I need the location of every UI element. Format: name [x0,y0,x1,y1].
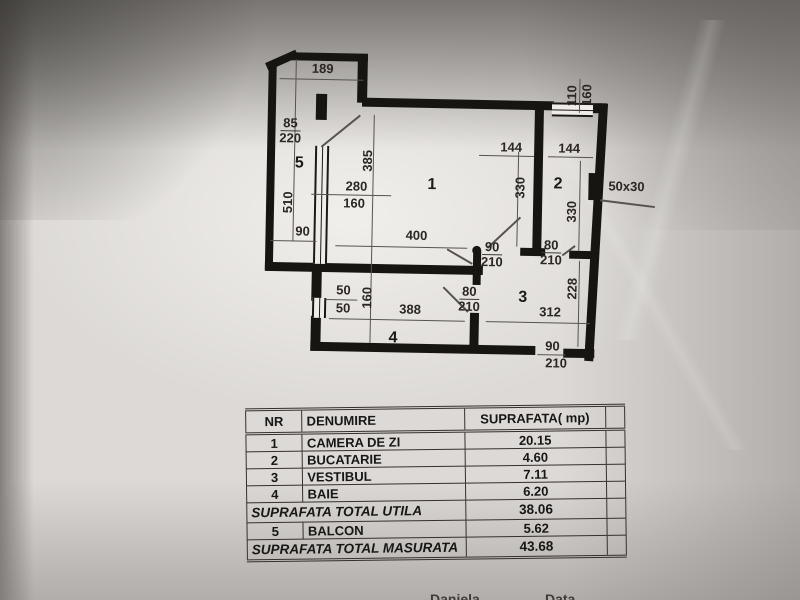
cell-stub [607,535,627,556]
total-utila-label: SUPRAFATA TOTAL UTILA [247,500,466,523]
cell-stub [606,464,626,481]
cell-nr: 5 [247,522,304,540]
cell-name: BAIE [303,483,466,502]
dim-door-80-210-bath: 80 210 [458,285,480,314]
dim-90: 90 [284,224,320,239]
cell-name: CAMERA DE ZI [302,431,465,451]
dim-312: 312 [530,305,570,320]
cell-area: 7.11 [465,464,606,483]
dim-280: 280 [336,179,376,194]
cell-stub [607,518,627,535]
wall [569,251,596,260]
header-stub [605,405,625,429]
cell-name: BUCATARIE [302,449,465,468]
dim-210: 210 [540,253,562,267]
total-utila-value: 38.06 [465,498,606,520]
dim-385: 385 [361,141,376,181]
door-pivot-dot [472,246,481,255]
dim-50-top: 50 [326,283,360,298]
footer-name-text: Daniela [430,591,480,600]
cell-name: VESTIBUL [303,466,466,485]
dim-50x30: 50x30 [604,179,648,194]
dim-210: 210 [458,300,480,314]
cell-stub [606,481,626,498]
room-label-balcony: 5 [295,155,304,171]
dim-160-top: 160 [580,78,595,112]
window [312,298,326,318]
total-masurata-label: SUPRAFATA TOTAL MASURATA [247,537,466,561]
leader-line [447,248,473,264]
dimension-line [548,156,593,158]
wall [265,262,483,275]
dim-90-entry: 90 [535,339,569,354]
dim-160-bath: 160 [360,278,375,318]
dim-400: 400 [396,228,436,243]
dim-144-left: 144 [492,140,530,155]
total-masurata-value: 43.68 [466,535,607,558]
dim-228: 228 [565,269,580,309]
header-suprafata: SUPRAFATA( mp) [464,405,605,431]
dim-door-85-220: 85 220 [279,116,301,145]
cell-name: BALCON [303,520,466,539]
wall [532,107,544,255]
dimension-line [486,321,590,324]
cell-stub [606,447,626,464]
dim-door-80-210: 80 210 [540,238,562,267]
header-nr: NR [246,409,303,434]
cell-stub [606,498,626,518]
cell-nr: 2 [246,451,303,469]
room-label-vestibule: 3 [518,290,527,306]
wall [316,94,327,120]
dim-330-right: 330 [565,192,580,232]
room-label-kitchen: 2 [553,176,562,192]
dim-50-bottom: 50 [326,301,360,316]
dim-510: 510 [281,182,296,222]
total-masurata-row: SUPRAFATA TOTAL MASURATA 43.68 [247,535,626,561]
cell-stub [606,429,626,447]
dim-160: 160 [334,196,374,211]
header-denumire: DENUMIRE [302,407,465,433]
dim-110: 110 [565,79,580,113]
dim-door-90-210: 90 210 [481,240,503,269]
pillar-50x30 [588,173,600,200]
window [313,146,329,264]
cell-area: 20.15 [465,429,606,449]
dim-330-left: 330 [513,168,528,208]
cell-nr: 1 [246,433,303,452]
dimension-line [279,78,363,81]
dimension-line [479,155,534,157]
dim-210-entry: 210 [537,356,575,371]
footer-data-label: Data [545,591,575,600]
cell-area: 6.20 [465,481,606,500]
dim-144-right: 144 [550,141,588,156]
cell-nr: 3 [246,468,303,486]
room-label-living: 1 [427,177,436,193]
cell-nr: 4 [247,485,304,503]
cell-area: 4.60 [465,447,606,466]
dimension-line [329,318,465,322]
leader-line [600,199,655,207]
dim-388: 388 [390,302,430,317]
dim-189: 189 [303,62,343,77]
room-label-bath: 4 [388,330,397,346]
wall [362,98,554,111]
photographed-floor-plan-document: 189 85 220 510 385 280 160 90 400 144 14… [0,0,800,600]
cell-area: 5.62 [466,518,607,537]
wall [265,62,277,269]
area-table: NR DENUMIRE SUPRAFATA( mp) 1 CAMERA DE Z… [245,404,627,563]
wall [311,263,322,301]
dim-210: 210 [481,255,503,269]
dim-220: 220 [279,131,301,145]
wall [310,342,535,355]
